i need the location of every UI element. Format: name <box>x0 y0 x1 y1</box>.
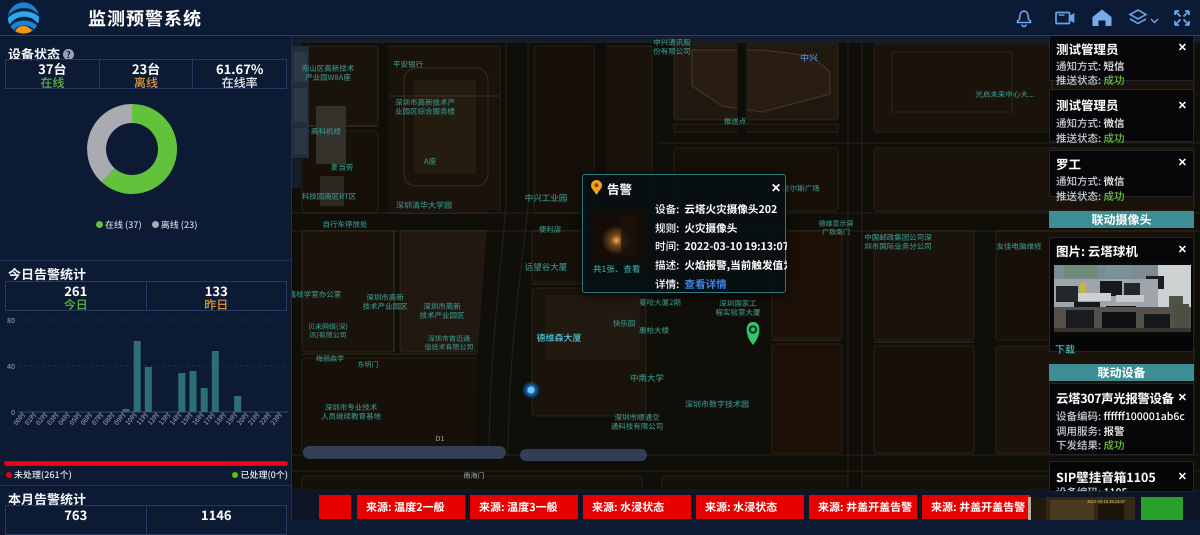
svg-text:推送点: 推送点 <box>724 116 747 127</box>
svg-text:深圳清华大学园: 深圳清华大学园 <box>396 200 452 211</box>
svg-text:梅丽森学: 梅丽森学 <box>316 354 344 364</box>
svg-text:远望谷大厦: 远望谷大厦 <box>525 261 568 273</box>
svg-text:中兴通讯股份有限公司: 中兴通讯股份有限公司 <box>653 37 691 57</box>
svg-text:光启未来中心大...: 光启未来中心大... <box>975 89 1034 100</box>
svg-text:80: 80 <box>7 316 15 326</box>
svg-text:麦当劳: 麦当劳 <box>331 162 354 173</box>
svg-text:便利店: 便利店 <box>539 224 562 235</box>
svg-text:快乐园: 快乐园 <box>613 318 636 329</box>
svg-text:南海门: 南海门 <box>464 471 485 481</box>
svg-text:德维显示屏广铁南门: 德维显示屏广铁南门 <box>819 219 854 238</box>
svg-text:D1: D1 <box>436 434 445 444</box>
svg-text:40: 40 <box>7 362 15 372</box>
svg-text:平安银行: 平安银行 <box>393 59 423 70</box>
svg-text:2022-03-10 19:13:07: 2022-03-10 19:13:07 <box>1087 499 1126 505</box>
svg-text:贝未网络(深)讯(有限公司: 贝未网络(深)讯(有限公司 <box>308 322 348 341</box>
svg-text:惠柏大楼: 惠柏大楼 <box>639 325 669 336</box>
svg-text:深圳市高新技术产业园区: 深圳市高新技术产业园区 <box>363 292 408 312</box>
svg-text:A座: A座 <box>424 156 437 167</box>
svg-text:东明门: 东明门 <box>358 360 379 370</box>
svg-text:深圳市数字技术园: 深圳市数字技术园 <box>685 399 749 410</box>
svg-text:深圳国家工程实验室大厦: 深圳国家工程实验室大厦 <box>716 298 761 318</box>
svg-text:中国邮政集团公司深圳市国际业务分公司: 中国邮政集团公司深圳市国际业务分公司 <box>864 232 932 252</box>
svg-text:南山区高新技术产业园W8A座: 南山区高新技术产业园W8A座 <box>302 63 355 83</box>
svg-text:德维森大厦: 德维森大厦 <box>536 331 581 344</box>
svg-text:中兴: 中兴 <box>800 51 818 64</box>
svg-text:嘉枝学室办公室: 嘉枝学室办公室 <box>292 289 342 300</box>
svg-text:深圳市顺通交通科技有限公司: 深圳市顺通交通科技有限公司 <box>611 412 664 432</box>
svg-text:中兴工业园: 中兴工业园 <box>525 192 568 204</box>
svg-text:自行车停放处: 自行车停放处 <box>323 219 368 230</box>
svg-text:深圳市首迈通信技术有限公司: 深圳市首迈通信技术有限公司 <box>425 334 474 353</box>
svg-text:查尔斯广场: 查尔斯广场 <box>782 183 820 194</box>
svg-text:深圳市高新技术产业园区: 深圳市高新技术产业园区 <box>420 301 465 321</box>
svg-text:友佳电脑维修: 友佳电脑维修 <box>997 241 1042 252</box>
svg-text:深圳市专业技术人员继续教育基地: 深圳市专业技术人员继续教育基地 <box>321 402 381 422</box>
svg-text:高科机楼: 高科机楼 <box>311 126 341 137</box>
svg-text:曼哈大厦2期: 曼哈大厦2期 <box>639 297 681 308</box>
svg-text:科技园南区RT区: 科技园南区RT区 <box>302 191 357 202</box>
svg-text:中南大学: 中南大学 <box>630 372 665 384</box>
svg-text:深圳市高新技术产业园区综合服务楼: 深圳市高新技术产业园区综合服务楼 <box>395 97 455 117</box>
